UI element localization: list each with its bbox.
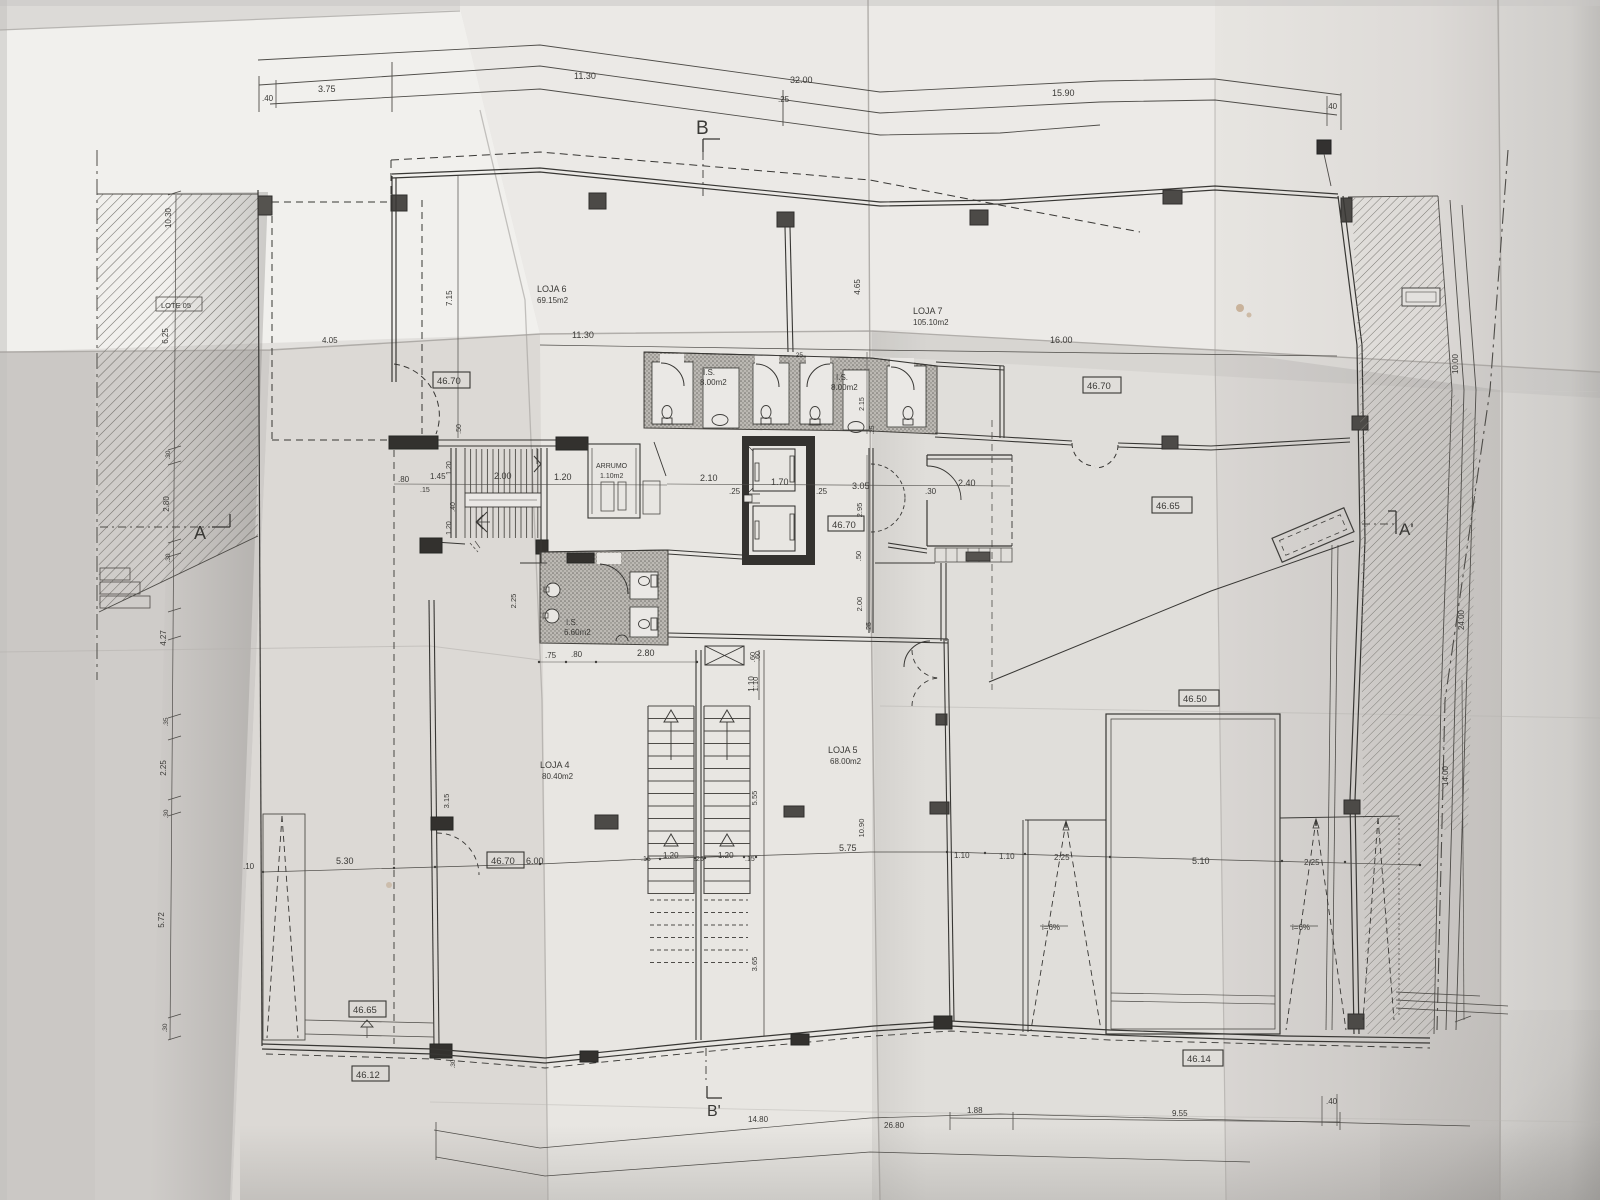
svg-text:5.72: 5.72: [157, 912, 166, 928]
svg-text:46.65: 46.65: [353, 1005, 377, 1016]
svg-text:2.10: 2.10: [700, 473, 718, 483]
svg-text:1.45: 1.45: [430, 472, 446, 481]
svg-text:2.25: 2.25: [1304, 858, 1320, 867]
svg-text:5.30: 5.30: [336, 856, 354, 866]
svg-text:1.20: 1.20: [718, 851, 734, 860]
svg-text:2.00: 2.00: [494, 471, 512, 481]
svg-text:i=6%: i=6%: [1292, 923, 1310, 932]
svg-text:2.95: 2.95: [855, 503, 864, 518]
svg-text:2.25: 2.25: [509, 594, 518, 609]
svg-text:.30: .30: [163, 809, 170, 818]
svg-text:1.20: 1.20: [446, 521, 453, 535]
svg-text:3.15: 3.15: [442, 794, 451, 809]
svg-text:32.00: 32.00: [790, 75, 813, 85]
svg-text:1.88: 1.88: [967, 1106, 983, 1115]
svg-text:5.10: 5.10: [1192, 856, 1210, 866]
svg-text:.40: .40: [1326, 102, 1338, 111]
svg-text:LOJA 5: LOJA 5: [828, 745, 858, 755]
svg-text:.40: .40: [1326, 1097, 1338, 1106]
svg-text:.30: .30: [925, 487, 937, 496]
svg-text:.40: .40: [262, 94, 274, 103]
svg-text:16.00: 16.00: [1050, 335, 1073, 345]
svg-text:.25: .25: [816, 487, 828, 496]
svg-text:14.00: 14.00: [1441, 765, 1450, 786]
svg-text:.30: .30: [165, 450, 172, 459]
svg-text:.50: .50: [456, 424, 463, 434]
svg-text:5.55: 5.55: [750, 791, 759, 806]
svg-text:2.25: 2.25: [1054, 853, 1070, 862]
svg-text:1.10m2: 1.10m2: [600, 473, 623, 480]
svg-text:.80: .80: [571, 650, 583, 659]
svg-text:80.40m2: 80.40m2: [542, 772, 574, 781]
svg-text:1.20: 1.20: [554, 472, 572, 482]
svg-text:.25: .25: [869, 425, 876, 434]
svg-text:2.15: 2.15: [859, 397, 866, 411]
svg-text:.30: .30: [162, 1023, 169, 1032]
svg-text:46.70: 46.70: [1087, 381, 1111, 392]
svg-text:LOJA 4: LOJA 4: [540, 760, 570, 770]
svg-text:68.00m2: 68.00m2: [830, 757, 862, 766]
svg-text:8.00m2: 8.00m2: [700, 378, 727, 387]
svg-text:46.70: 46.70: [832, 520, 856, 531]
svg-text:1.10: 1.10: [954, 851, 970, 860]
svg-text:3.65: 3.65: [750, 957, 759, 972]
svg-text:105.10m2: 105.10m2: [913, 318, 949, 327]
svg-text:2.40: 2.40: [958, 478, 976, 488]
svg-text:10.90: 10.90: [857, 819, 866, 838]
svg-text:LOJA 7: LOJA 7: [913, 306, 943, 316]
svg-text:46.70: 46.70: [491, 856, 515, 867]
svg-text:4.05: 4.05: [322, 336, 338, 345]
svg-text:46.12: 46.12: [356, 1070, 380, 1081]
svg-text:69.15m2: 69.15m2: [537, 296, 569, 305]
svg-text:10.00: 10.00: [1451, 353, 1460, 374]
svg-text:B': B': [707, 1103, 721, 1120]
svg-text:11.30: 11.30: [574, 71, 596, 81]
svg-text:.40: .40: [450, 502, 457, 512]
svg-text:46.14: 46.14: [1187, 1054, 1211, 1065]
svg-text:.75: .75: [545, 651, 557, 660]
svg-text:ARRUMO: ARRUMO: [596, 463, 628, 470]
svg-text:.50: .50: [854, 551, 863, 561]
svg-text:46.50: 46.50: [1183, 694, 1207, 705]
svg-text:10.30: 10.30: [164, 207, 173, 228]
svg-text:1.70: 1.70: [771, 477, 789, 487]
svg-text:A': A': [1399, 520, 1414, 539]
svg-text:6.60m2: 6.60m2: [564, 628, 591, 637]
svg-text:4.27: 4.27: [159, 630, 168, 646]
svg-text:11.30: 11.30: [572, 330, 594, 340]
svg-text:.15: .15: [745, 856, 755, 863]
svg-text:6.00: 6.00: [526, 856, 544, 866]
svg-text:4.65: 4.65: [853, 279, 862, 295]
svg-text:I.S.: I.S.: [566, 618, 578, 627]
svg-text:5.75: 5.75: [839, 843, 857, 853]
svg-text:A: A: [194, 523, 206, 543]
svg-text:15.90: 15.90: [1052, 88, 1075, 98]
svg-text:2.80: 2.80: [637, 648, 655, 658]
svg-text:.10: .10: [243, 862, 255, 871]
svg-text:46.65: 46.65: [1156, 501, 1180, 512]
svg-text:.35: .35: [163, 717, 170, 726]
svg-text:2.00: 2.00: [855, 597, 864, 612]
svg-text:LOJA 6: LOJA 6: [537, 284, 567, 294]
svg-text:I.S.: I.S.: [836, 373, 848, 382]
svg-text:B: B: [696, 118, 709, 139]
svg-text:14.80: 14.80: [748, 1115, 769, 1124]
svg-text:9.55: 9.55: [1172, 1109, 1188, 1118]
svg-text:.25: .25: [729, 487, 741, 496]
svg-text:46.70: 46.70: [437, 376, 461, 387]
svg-text:6.25: 6.25: [161, 328, 170, 344]
svg-text:26.80: 26.80: [884, 1121, 905, 1130]
svg-text:24.00: 24.00: [1457, 609, 1466, 630]
svg-text:.80: .80: [398, 475, 410, 484]
svg-text:I.S.: I.S.: [703, 368, 715, 377]
svg-text:2.80: 2.80: [162, 496, 171, 512]
svg-text:.60: .60: [755, 651, 762, 661]
svg-text:8.00m2: 8.00m2: [831, 383, 858, 392]
svg-text:7.15: 7.15: [445, 290, 454, 306]
svg-text:.15: .15: [420, 487, 430, 494]
svg-text:.25: .25: [778, 95, 790, 104]
svg-text:i=6%: i=6%: [1042, 923, 1060, 932]
svg-text:LOTE 05: LOTE 05: [161, 301, 191, 310]
svg-text:1.10: 1.10: [751, 677, 760, 692]
svg-text:3.75: 3.75: [318, 84, 336, 94]
svg-text:1.10: 1.10: [999, 852, 1015, 861]
svg-text:.30: .30: [165, 553, 172, 562]
svg-text:1.20: 1.20: [446, 461, 453, 475]
svg-text:2.25: 2.25: [159, 760, 168, 776]
svg-text:.25: .25: [794, 352, 803, 359]
